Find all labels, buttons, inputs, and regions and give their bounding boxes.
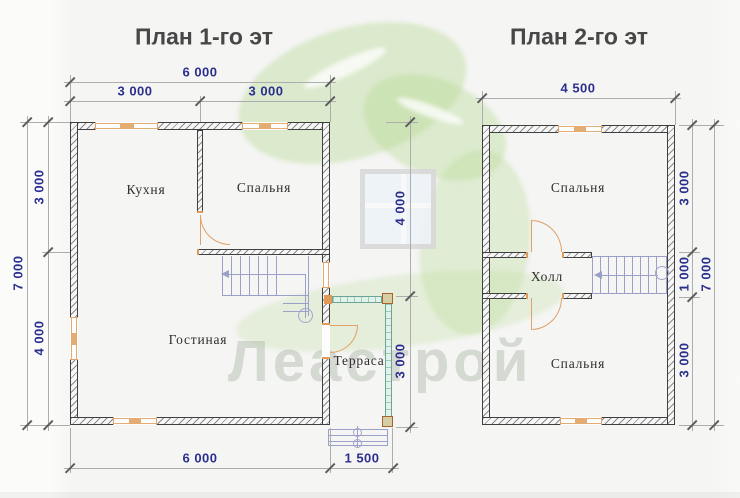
- floor1-window-kitchen: [95, 122, 158, 130]
- dim-label-floor1-top-total: 6 000: [182, 65, 217, 80]
- wall-end-cap: [197, 249, 199, 255]
- dim-label-terrace-depth: 3 000: [393, 343, 408, 378]
- floor1-wall-divider: [197, 130, 203, 213]
- stairs-direction-arrow: [221, 270, 229, 278]
- floor-plan-drawing: Леастрой План 1-го эт План 2-го эт: [0, 0, 740, 498]
- dimension-line: [27, 116, 28, 431]
- dim-label-floor2-top-total: 4 500: [560, 81, 595, 96]
- floor1-title: План 1-го эт: [135, 24, 273, 51]
- dim-label-middle-upper: 4 000: [393, 190, 408, 225]
- floor2-hall-wall-top-left: [482, 252, 528, 258]
- stairs-start-symbol: [655, 266, 669, 280]
- wall-end-cap: [324, 295, 332, 304]
- wall-end-cap: [526, 293, 528, 299]
- extension-line: [679, 125, 724, 126]
- wall-end-cap: [562, 293, 564, 299]
- floor2-hall-wall-bottom-right: [562, 293, 592, 299]
- dimension-line: [714, 119, 715, 431]
- dim-label-floor2-right-upper: 3 000: [677, 170, 692, 205]
- hall-top-door-swing-arc: [531, 220, 562, 252]
- room-label-bedroom-floor1: Спальня: [237, 180, 291, 196]
- room-label-terrace: Терраса: [334, 353, 385, 369]
- dim-label-floor1-left-lower: 4 000: [32, 320, 47, 355]
- extension-line: [679, 425, 724, 426]
- stairs-tread: [249, 256, 250, 295]
- floor1-window-living-bottom: [113, 417, 157, 425]
- terrace-post: [382, 293, 393, 304]
- dim-label-floor2-right-middle: 1 000: [677, 256, 692, 291]
- terrace-beam-right: [385, 303, 392, 418]
- stairs-tread: [231, 256, 232, 295]
- floor2-window-bottom: [560, 417, 602, 425]
- dim-label-floor1-left-upper: 3 000: [32, 169, 47, 204]
- dim-label-floor1-left-total: 7 000: [11, 255, 26, 290]
- terrace-post: [382, 416, 393, 427]
- room-label-hall: Холл: [531, 269, 563, 285]
- hall-bottom-door-swing-arc: [531, 298, 562, 330]
- floor2-wall-left: [482, 125, 490, 425]
- dim-label-floor2-right-total: 7 000: [699, 256, 714, 291]
- stairs-direction-arrow: [594, 271, 602, 279]
- room-label-living-room: Гостиная: [169, 332, 228, 348]
- wall-end-cap: [322, 357, 330, 359]
- floor1-window-bedroom: [242, 122, 288, 130]
- dim-label-floor2-right-lower: 3 000: [677, 342, 692, 377]
- dim-label-terrace-width: 1 500: [344, 451, 379, 466]
- dimension-line: [692, 119, 693, 431]
- floor2-title: План 2-го эт: [510, 24, 648, 51]
- floor1-window-stairs-right: [322, 262, 330, 288]
- dim-label-floor1-bottom-total: 6 000: [182, 451, 217, 466]
- stairs-direction-line: [228, 274, 306, 275]
- stairs-direction-line: [600, 275, 658, 276]
- stairs-tread: [240, 256, 241, 295]
- floor1-window-living-left: [70, 317, 78, 360]
- wall-end-cap: [197, 211, 203, 213]
- dimension-line: [476, 98, 681, 99]
- terrace-beam-top: [332, 296, 382, 303]
- stairs-tread: [267, 256, 268, 295]
- dim-label-floor1-top-right: 3 000: [248, 84, 283, 99]
- stairs-tread: [276, 256, 277, 295]
- image-bottom-edge: [0, 492, 740, 498]
- step-symbol: [353, 428, 362, 437]
- room-label-bedroom-top-floor2: Спальня: [551, 180, 605, 196]
- wall-end-cap: [562, 252, 564, 258]
- extension-line: [386, 122, 418, 123]
- wall-end-cap: [322, 323, 330, 325]
- dimension-line: [410, 116, 411, 433]
- floor2-hall-wall-bottom-left: [482, 293, 528, 299]
- stairs-edge: [222, 295, 308, 296]
- dimension-line: [64, 468, 399, 469]
- floor1-wall-left: [70, 122, 78, 425]
- stairs-start-symbol: [298, 308, 313, 323]
- floor2-window-top: [558, 125, 602, 133]
- floor1-wall-bottom: [70, 417, 330, 425]
- dimension-line: [48, 116, 49, 431]
- stairs-tread: [258, 256, 259, 295]
- floor2-hall-wall-top-right: [562, 252, 592, 258]
- floor1-terrace-door-opening: [322, 325, 330, 357]
- floor1-wall-interior: [197, 249, 330, 255]
- wall-end-cap: [526, 252, 528, 258]
- interior-door-swing-arc: [200, 215, 230, 245]
- stairs-edge: [308, 256, 309, 316]
- room-label-bedroom-bottom-floor2: Спальня: [551, 356, 605, 372]
- step-symbol: [353, 439, 362, 448]
- dimension-line: [64, 82, 336, 83]
- dim-label-floor1-top-left: 3 000: [117, 84, 152, 99]
- room-label-kitchen: Кухня: [127, 182, 166, 198]
